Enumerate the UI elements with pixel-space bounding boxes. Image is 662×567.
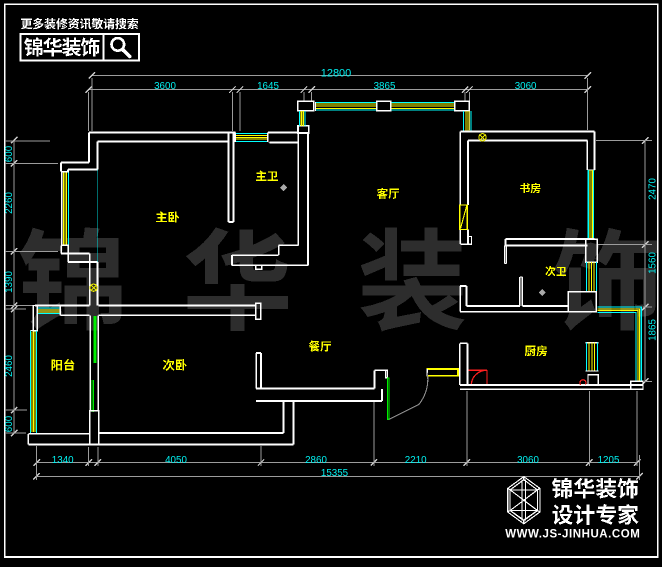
svg-text:2460: 2460: [4, 355, 15, 377]
svg-text:2470: 2470: [648, 178, 659, 200]
svg-text:1645: 1645: [257, 81, 279, 92]
svg-text:1560: 1560: [648, 252, 659, 274]
svg-text:1865: 1865: [648, 319, 659, 341]
svg-text:4050: 4050: [165, 455, 187, 466]
svg-text:12800: 12800: [321, 67, 352, 79]
svg-text:3060: 3060: [515, 81, 537, 92]
svg-text:15355: 15355: [321, 468, 349, 479]
svg-text:2260: 2260: [4, 192, 15, 214]
svg-text:2860: 2860: [305, 455, 327, 466]
svg-text:3865: 3865: [374, 81, 396, 92]
svg-text:3600: 3600: [154, 81, 176, 92]
svg-text:1340: 1340: [52, 455, 74, 466]
svg-text:WWW.JS-JINHUA.COM: WWW.JS-JINHUA.COM: [505, 528, 640, 540]
svg-text:600: 600: [4, 415, 15, 432]
svg-text:3060: 3060: [517, 455, 539, 466]
svg-text:1390: 1390: [4, 271, 15, 293]
svg-text:1205: 1205: [598, 455, 620, 466]
svg-text:600: 600: [4, 145, 15, 162]
svg-text:2210: 2210: [405, 455, 427, 466]
